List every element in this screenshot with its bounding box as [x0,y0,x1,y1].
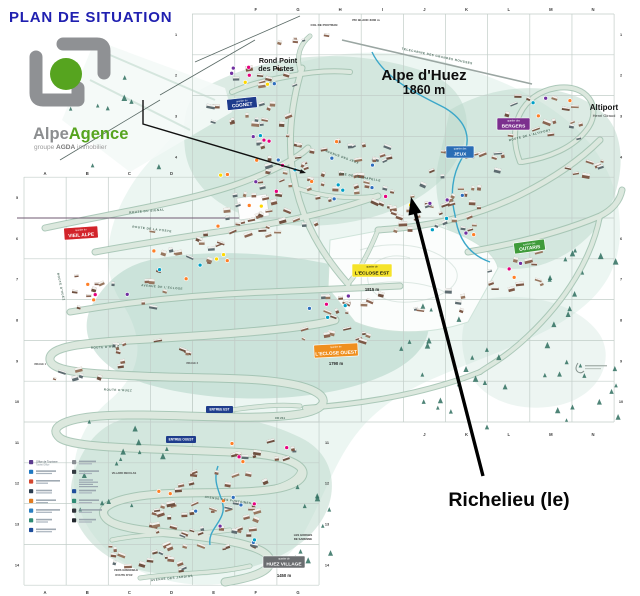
building-roof [246,532,251,534]
building [249,527,257,532]
grid-letter: L [507,432,510,437]
poi-dot [93,293,97,297]
legend-text-bar [36,473,52,474]
poi-dot [512,275,516,279]
building [111,282,114,286]
building [167,557,174,563]
building-roof [203,232,208,234]
building-roof [256,140,261,143]
tree-icon [485,424,489,429]
legend-text-bar [79,461,96,463]
resort-altitude: 1860 m [403,83,445,97]
grid-letter: K [465,7,468,12]
building-roof [109,545,113,546]
legend-text-bar [79,484,93,485]
grid-number: 7 [16,278,18,282]
grid-letter: M [549,7,553,12]
badge-prefix: quartier de [330,345,342,349]
building [251,121,259,127]
poi-dot [230,442,234,446]
building-roof [325,295,330,297]
legend-icon [29,479,33,483]
badge-name: ENTREE EST [209,408,229,412]
building [399,221,408,226]
building-roof [464,191,468,194]
building [258,228,266,232]
building [167,515,171,520]
legend-text-bar [36,512,52,513]
quartier-badge-vieil-alpe: quartier duVIEIL ALPE [64,226,99,240]
quartier-badge-eclose-ouest: quartier deL'ECLOSE OUEST [314,343,359,358]
legend-text-bar [36,529,56,531]
building-roof [302,222,307,224]
building-roof [491,287,498,288]
building [246,532,251,536]
legend-icon [29,509,33,513]
place-label: PIC BLANC 3330 m [352,18,380,22]
place-label: Henri Giraud [593,113,616,118]
tree-icon [616,414,621,420]
richelieu-label: Richelieu (le) [448,489,569,511]
poi-dot [335,140,339,144]
grid-letter: L [507,7,510,12]
grid-letter: F [255,590,258,595]
building [225,216,230,221]
road-label: ROUTE D'HUEZ [56,272,66,301]
building [74,274,78,277]
place-label: DE SARENNE [294,537,312,541]
grid-letter: A [44,590,47,595]
building-roof [112,282,115,284]
building-roof [452,218,457,220]
grid-number: 5 [16,196,18,200]
building-roof [167,515,171,517]
badge-prefix: quartier des [507,120,520,123]
grid-letter: J [423,432,426,437]
poi-dot [152,249,156,253]
building [445,288,452,294]
building [361,302,368,307]
building [268,156,272,161]
building [242,455,249,459]
poi-dot [222,253,226,257]
resort-name: Alpe d'Huez [381,67,466,84]
page-title: PLAN DE SITUATION [9,9,172,26]
poi-dot [216,224,220,228]
building [185,351,189,356]
building [324,33,330,37]
place-label: ROUTE D'OZ [115,573,132,577]
building-roof [440,174,444,176]
building [274,230,281,233]
grid-number: 8 [620,319,622,323]
grid-number: 6 [620,237,622,241]
building [477,185,481,191]
grid-letter: C [128,590,131,595]
grid-number: 11 [325,441,329,445]
building [108,545,112,548]
building [224,482,231,488]
poi-dot [445,216,449,220]
poi-dot [218,524,222,528]
poi-dot [86,282,90,286]
building [408,227,413,232]
tree-icon [609,389,613,394]
poi-dot [247,73,251,77]
badge-altitude: 1450 m [277,573,291,578]
poi-dot [370,163,374,167]
tree-icon [438,397,443,403]
building [338,296,343,300]
tree-icon [327,507,331,511]
building [452,218,457,223]
poi-dot [158,268,162,272]
grid-number: 2 [175,74,177,78]
poi-dot [336,183,340,187]
grid-letter: N [592,7,595,12]
legend-text-bar [36,492,52,493]
building [293,39,299,43]
building-roof [288,183,292,185]
grid-letter: C [128,171,131,176]
building [354,190,360,195]
legend-label: Office de Tourisme [36,459,58,463]
legend-label: Tourist Office [36,463,50,466]
legend-text-bar [79,521,92,522]
poi-dot [198,263,202,267]
legend-text-bar [79,486,98,487]
logo-subtitle: groupe AGDA immobilier [34,144,107,151]
building-roof [477,185,481,188]
grid-letter: F [255,7,258,12]
building [531,262,537,265]
grid-letter: E [212,590,215,595]
grid-number: 11 [15,441,19,445]
legend-text-bar [79,502,92,503]
building-roof [208,246,215,248]
building-roof [86,294,91,296]
building-roof [233,77,239,79]
legend-text-bar [36,499,56,501]
poi-dot [384,194,388,198]
grid-letter: I [382,7,383,12]
logo-green-circle [50,58,82,90]
grid-number: 10 [15,400,19,404]
entry-badge: ENTREE EST [206,406,233,413]
poi-dot [370,186,374,190]
building-roof [458,187,464,188]
poi-dot [252,538,256,542]
poi-dot [276,158,280,162]
building [569,124,574,129]
poi-dot [157,489,161,493]
building-roof [445,288,452,291]
building-roof [181,513,187,515]
building-roof [268,156,272,159]
poi-dot [519,261,523,265]
legend-item [29,479,60,483]
poi-dot [307,306,311,310]
building [113,547,117,552]
place-label: des Pistes [258,64,294,73]
grid-letter: G [296,7,299,12]
building-roof [399,221,408,224]
legend-icon [72,460,76,464]
grid-letter: D [170,590,173,595]
badge-altitude: 1815 m [365,287,379,292]
poi-dot [310,180,314,184]
building [233,77,239,81]
building-roof [408,227,413,229]
poi-dot [247,203,251,207]
building [274,457,279,461]
badge-name: BERGERS [502,124,527,130]
poi-dot [285,446,289,450]
grid-number: 3 [620,115,622,119]
building-roof [141,301,145,303]
poi-dot [428,201,432,205]
grid-letter: N [592,432,595,437]
grid-number: 14 [325,563,330,567]
building [91,286,97,292]
legend-item [29,528,56,532]
legend-text-bar [79,509,102,511]
poi-dot [343,304,347,308]
building [390,190,394,194]
building [214,470,219,475]
grid-number: 13 [325,523,329,527]
building [469,200,476,205]
building-roof [149,279,155,282]
building [477,206,481,210]
building-roof [279,121,284,124]
building-roof [270,101,276,104]
poi-dot [460,193,464,197]
legend-text-bar [79,519,96,521]
badge-name: ENTREE OUEST [169,438,194,442]
tree-icon [422,399,426,404]
logo-wordmark: AlpeAgence [33,125,128,143]
place-label: COL DE POUTRAN [311,23,338,27]
tree-icon [449,409,453,414]
building [86,294,91,297]
building [460,226,465,230]
badge-name: L'ECLOSE EST [355,271,390,277]
entry-badge: ENTREE OUEST [166,436,196,443]
building [514,94,521,98]
tree-icon [555,407,560,413]
building [112,560,116,565]
legend-text-bar [79,470,99,472]
building-roof [286,134,289,136]
poi-dot [252,502,256,506]
poi-dot [215,257,219,261]
poi-dot [544,96,548,100]
poi-dot [194,509,198,513]
building [440,174,444,178]
legend-item [29,518,52,522]
poi-dot [259,204,263,208]
building [235,222,240,226]
badge-prefix: quartier des [454,148,467,151]
quartier-badge-jeux: quartier desJEUX [446,146,474,158]
poi-dot [247,65,251,69]
legend-icon [29,470,33,474]
badge-name: HUEZ VILLAGE [266,562,302,568]
building [571,105,579,108]
poi-dot [341,188,345,192]
legend-text-bar [79,463,92,464]
building [223,207,230,213]
poi-dot [241,460,245,464]
poi-dot [464,231,468,235]
grid-letter: D [170,171,173,176]
legend-icon [72,518,76,522]
place-label: VILLARD RECULAS [112,471,137,475]
tree-icon [298,549,302,554]
building [516,281,524,286]
poi-dot [92,298,96,302]
poi-dot [254,180,258,184]
legend-icon [72,489,76,493]
legend-icon [72,509,76,513]
legend-text-bar [36,480,60,482]
quartier-badge-huez-village: quartier deHUEZ VILLAGE [263,556,305,568]
building [362,332,366,336]
legend-icon [29,489,33,493]
legend-icon [72,470,76,474]
legend-text-bar [79,482,98,483]
building [72,290,78,294]
poi-dot [267,139,271,143]
place-label: CD 211 [275,416,285,420]
legend-text-bar [79,473,92,474]
building [288,183,292,187]
poi-dot [445,198,449,202]
poi-dot [266,82,270,86]
legend-text-bar [79,479,93,480]
poi-dot [346,294,350,298]
building [270,101,276,106]
tree-icon [436,406,440,410]
legend-icon [29,518,33,522]
grid-number: 7 [620,278,622,282]
grid-number: 12 [325,482,329,486]
badge-name: JEUX [454,152,467,158]
building [460,294,465,299]
tree-icon [328,550,333,556]
poi-dot [568,99,572,103]
legend-icon [72,499,76,503]
legend-text-bar [36,470,56,472]
building [257,74,263,77]
poi-dot [258,134,262,138]
resort-map: FGHIJKLMNABCDJKLMNABCDEFG123412345678910… [0,0,640,596]
grid-number: 1 [175,33,177,37]
building-roof [294,37,297,38]
grid-letter: A [44,171,47,176]
grid-number: 8 [16,319,18,323]
building [260,122,264,126]
legend-item [29,489,52,493]
building [111,553,117,558]
poi-dot [168,492,172,496]
poi-dot [330,156,334,160]
legend-item [29,470,56,474]
building-roof [251,193,256,195]
legend-text-bar [79,512,92,513]
building [117,364,124,369]
legend-item [29,499,56,503]
poi-dot [536,114,540,118]
building-roof [245,113,248,115]
building-roof [124,564,132,566]
building [255,117,259,122]
grid-number: 3 [175,115,177,119]
grid-letter: H [339,7,342,12]
building [455,300,462,305]
grid-number: 6 [16,237,18,241]
legend-text-bar [36,531,52,532]
legend-text-bar [36,521,48,522]
legend-icon [29,460,33,464]
poi-dot [262,138,266,142]
poi-dot [251,135,255,139]
poi-dot [237,455,241,459]
building [53,377,57,380]
building [297,144,301,147]
poi-dot [531,101,535,105]
poi-dot [243,80,247,84]
poi-dot [324,302,328,306]
poi-dot [225,259,229,263]
grid-number: 2 [620,74,622,78]
building-roof [199,241,205,243]
poi-dot [125,292,129,296]
building [203,232,208,237]
grid-letter: B [86,590,89,595]
building [231,528,237,534]
grid-number: 9 [620,359,622,363]
poi-dot [272,82,276,86]
building [175,488,182,493]
plan-de-situation-page: FGHIJKLMNABCDJKLMNABCDEFG123412345678910… [0,0,640,596]
poi-dot [225,173,229,177]
grid-letter: G [296,590,299,595]
poi-dot [219,173,223,177]
building [98,281,105,287]
tree-icon [565,418,568,422]
poi-dot [332,197,336,201]
place-label: Altiport [590,103,619,112]
poi-dot [231,66,235,70]
legend-text-bar [36,509,60,511]
building [472,223,477,226]
legend-text-bar [79,499,99,501]
building [245,113,249,118]
poi-dot [430,228,434,232]
legend-text-bar [36,502,48,503]
legend-item [29,509,60,513]
tree-icon [597,399,602,405]
building-roof [514,94,521,96]
building [181,513,187,518]
building-roof [248,507,255,508]
grid-number: 13 [15,523,19,527]
legend-text-bar [79,492,92,493]
grid-letter: M [549,432,553,437]
tree-icon [614,383,618,387]
